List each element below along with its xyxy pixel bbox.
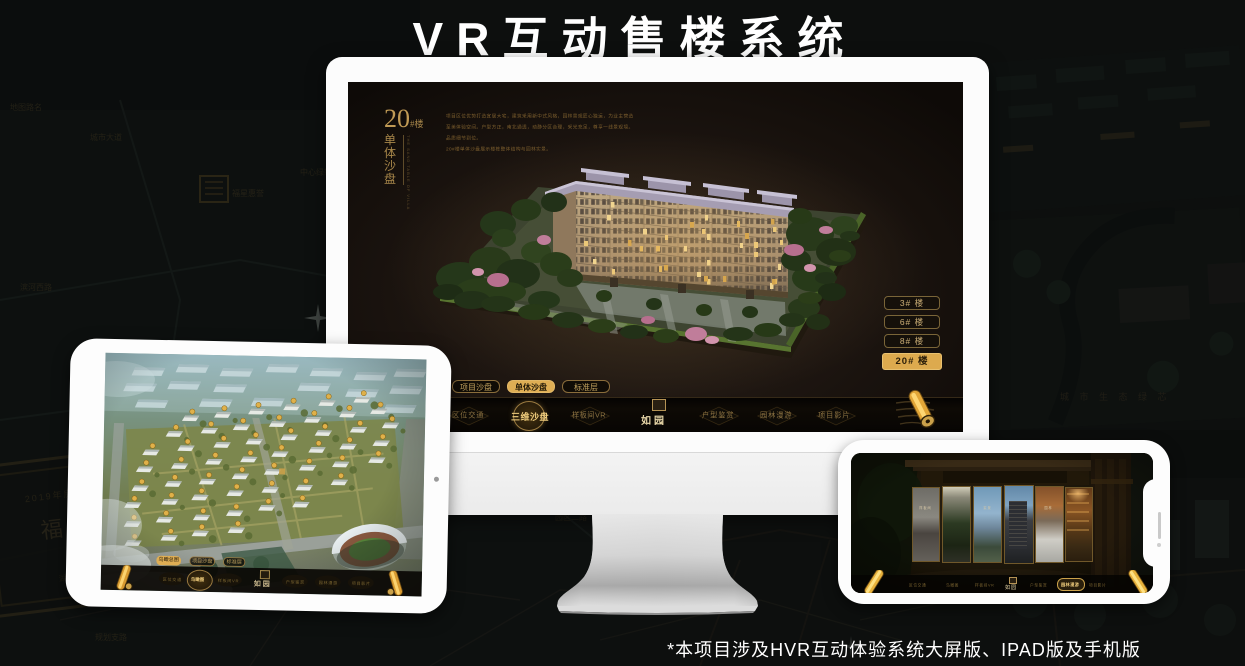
svg-text:城 市 生 态 绿 芯: 城 市 生 态 绿 芯 [1060,391,1171,402]
svg-text:规划支路: 规划支路 [95,632,127,642]
svg-text:城市大道: 城市大道 [90,132,122,142]
svg-text:滨河西路: 滨河西路 [20,282,52,292]
svg-text:福星惠誉: 福星惠誉 [232,188,264,198]
svg-text:地图路名: 地图路名 [10,102,42,112]
